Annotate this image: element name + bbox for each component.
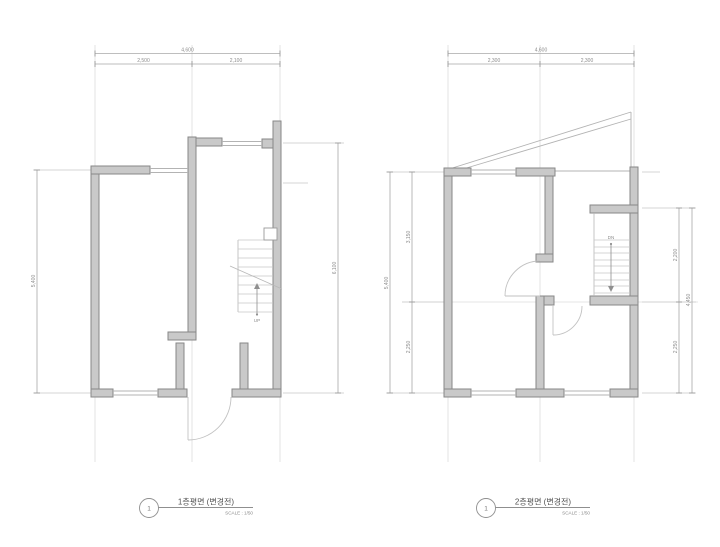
- entry-door: [188, 397, 231, 440]
- floor-plan-sheet: 4,600 2,500 2,100 5,400 6,100: [0, 0, 720, 547]
- wall-left: [91, 166, 99, 397]
- dim-label-top-right: 2,300: [581, 58, 594, 64]
- wall-center-upper: [545, 176, 553, 254]
- floor-plan-1: 4,600 2,500 2,100 5,400 6,100: [31, 45, 344, 518]
- dim-label-left-lower: 2,250: [406, 341, 412, 354]
- scale-label: SCALE : 1/50: [225, 511, 253, 516]
- wall-left: [444, 168, 452, 397]
- dim-label-right-total: 4,450: [686, 294, 692, 307]
- dim-label-right-lower: 2,250: [673, 341, 679, 354]
- dim-label-left: 5,400: [31, 275, 37, 288]
- stair-arrowhead: [608, 286, 614, 292]
- wall-right: [273, 121, 281, 397]
- wall-bottom-1: [91, 389, 113, 397]
- stair-arrowhead: [254, 283, 260, 289]
- dim-label-top-left: 2,300: [488, 58, 501, 64]
- wall-bottom-2: [158, 389, 187, 397]
- drawing-number: 1: [147, 506, 151, 513]
- drawing-number: 1: [484, 506, 488, 513]
- wall-middle-stub: [196, 138, 222, 146]
- wall-top-right-stub: [262, 139, 273, 148]
- wall-right: [630, 167, 638, 397]
- wall-middle: [188, 137, 196, 333]
- room-door-lower: [553, 306, 582, 335]
- stair-niche: [264, 228, 277, 240]
- wall-center-lower: [536, 296, 544, 397]
- wall-top-1: [444, 168, 471, 176]
- floor-plan-2: 4,600 2,300 2,300 5,400 3,150 2,250 2,20…: [384, 45, 698, 518]
- walls: [444, 167, 638, 397]
- room-door-upper: [505, 261, 540, 296]
- dim-label-top-total: 4,600: [181, 48, 194, 54]
- dim-label-left-upper: 3,150: [406, 231, 412, 244]
- dn-label: DN: [608, 235, 615, 240]
- title-block-2: 1 2층평면 (변경전) SCALE : 1/50: [477, 497, 591, 518]
- dim-label-top-right: 2,100: [230, 58, 243, 64]
- wall-stair-bottom: [590, 296, 638, 305]
- wall-bottom-2: [516, 389, 564, 397]
- wall-entry-right-stub: [240, 343, 248, 389]
- up-label: UP: [254, 318, 260, 323]
- wall-bottom-1: [444, 389, 471, 397]
- wall-bottom-3: [232, 389, 281, 397]
- dim-label-top-total: 4,600: [535, 48, 548, 54]
- staircase-down: DN: [594, 213, 630, 296]
- wall-middle-foot: [168, 332, 196, 340]
- stair-arrow-origin: [256, 313, 258, 315]
- wall-stair-top: [590, 205, 638, 213]
- scale-label: SCALE : 1/50: [562, 511, 590, 516]
- wall-bottom-3: [610, 389, 638, 397]
- roof-slope-lines: [446, 112, 631, 172]
- plan-title: 2층평면 (변경전): [515, 497, 571, 507]
- title-block-1: 1 1층평면 (변경전) SCALE : 1/50: [140, 497, 254, 518]
- wall-top-2: [516, 168, 555, 176]
- wall-top-left: [91, 166, 150, 174]
- walls: [91, 121, 281, 397]
- dim-label-right: 6,100: [332, 262, 338, 275]
- dim-label-left-total: 5,400: [384, 277, 390, 290]
- plan-title: 1층평면 (변경전): [178, 497, 234, 507]
- dim-label-right-upper: 2,200: [673, 249, 679, 262]
- dim-label-top-left: 2,500: [137, 58, 150, 64]
- wall-entry-left-stub: [176, 343, 184, 389]
